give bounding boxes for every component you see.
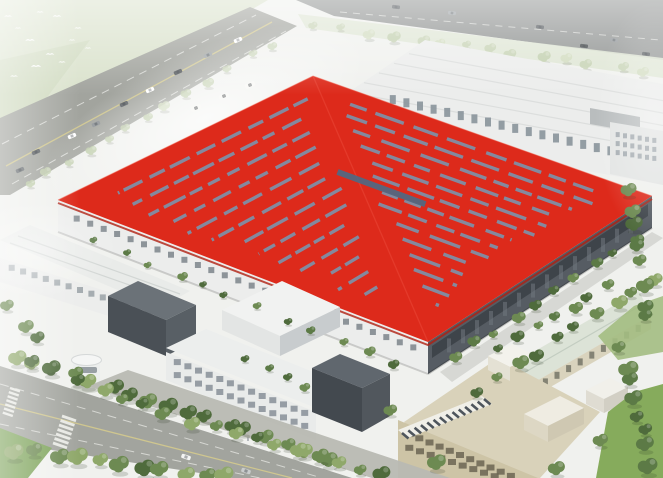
skylight-strip-dash: [338, 288, 342, 290]
window: [206, 372, 213, 378]
window: [448, 459, 456, 465]
window: [459, 463, 467, 469]
window: [499, 121, 505, 130]
window: [559, 265, 563, 279]
window: [227, 380, 234, 386]
window: [259, 406, 266, 412]
window: [280, 401, 287, 407]
window: [195, 262, 201, 268]
window: [415, 435, 423, 441]
skylight-strip-dash: [510, 239, 511, 240]
window: [553, 134, 559, 143]
window: [615, 229, 619, 243]
window: [476, 460, 484, 466]
window: [174, 372, 181, 378]
window: [458, 111, 464, 120]
window: [184, 376, 191, 382]
window: [291, 406, 298, 412]
window: [555, 372, 560, 379]
window: [195, 368, 202, 374]
window: [503, 302, 507, 316]
skylight-strip-dash: [436, 304, 439, 305]
window: [301, 423, 308, 429]
window: [410, 344, 416, 350]
skylight-strip-dash: [212, 239, 214, 240]
window: [416, 448, 424, 454]
window: [238, 398, 245, 404]
window: [235, 277, 241, 283]
window: [573, 256, 577, 270]
skylight-strip-dash: [569, 208, 572, 209]
window: [405, 445, 413, 451]
window: [403, 98, 409, 107]
window: [417, 102, 423, 111]
skylight-strip-dash: [453, 284, 457, 286]
window: [88, 291, 94, 297]
window: [489, 311, 493, 325]
window: [426, 440, 434, 446]
window: [436, 444, 444, 450]
window: [567, 137, 573, 146]
window: [469, 466, 477, 472]
window: [249, 283, 255, 289]
window: [580, 140, 586, 149]
window: [370, 329, 376, 335]
skylight-strip-dash: [188, 232, 192, 234]
window: [208, 267, 214, 273]
window: [222, 272, 228, 278]
window: [507, 473, 515, 478]
window: [184, 363, 191, 369]
window: [480, 470, 488, 476]
window: [216, 389, 223, 395]
window: [128, 236, 134, 242]
window: [168, 252, 174, 258]
skylight-strip-dash: [118, 192, 120, 193]
window: [216, 376, 223, 382]
window: [539, 130, 545, 139]
window: [397, 339, 403, 345]
window: [343, 319, 349, 325]
window: [383, 334, 389, 340]
window: [475, 320, 479, 334]
window: [174, 359, 181, 365]
window: [485, 118, 491, 127]
window: [155, 247, 161, 253]
window: [431, 105, 437, 114]
window: [269, 397, 276, 403]
window: [471, 114, 477, 123]
window: [259, 393, 266, 399]
window: [447, 338, 451, 352]
window: [512, 124, 518, 133]
window: [195, 381, 202, 387]
window: [578, 358, 583, 365]
window: [491, 473, 499, 478]
window: [356, 324, 362, 330]
window: [517, 293, 521, 307]
window: [181, 257, 187, 263]
window: [587, 247, 591, 261]
window: [280, 414, 287, 420]
window: [589, 352, 594, 359]
aerial-rendering-canvas: [0, 0, 663, 478]
window: [566, 365, 571, 372]
window: [461, 329, 465, 343]
window: [269, 410, 276, 416]
window: [456, 452, 464, 458]
window: [601, 345, 606, 352]
window: [390, 95, 396, 104]
window: [444, 108, 450, 117]
window: [206, 385, 213, 391]
window: [227, 393, 234, 399]
window: [446, 448, 454, 454]
window: [248, 389, 255, 395]
window: [291, 419, 298, 425]
window: [545, 274, 549, 288]
window: [466, 456, 474, 462]
window: [248, 402, 255, 408]
window: [427, 452, 435, 458]
scene-svg: [0, 0, 663, 478]
window: [531, 284, 535, 298]
window: [141, 241, 147, 247]
window: [601, 238, 605, 252]
haze-top: [0, 0, 663, 95]
window: [487, 465, 495, 471]
window: [238, 385, 245, 391]
window: [301, 410, 308, 416]
window: [100, 294, 106, 300]
window: [526, 127, 532, 136]
